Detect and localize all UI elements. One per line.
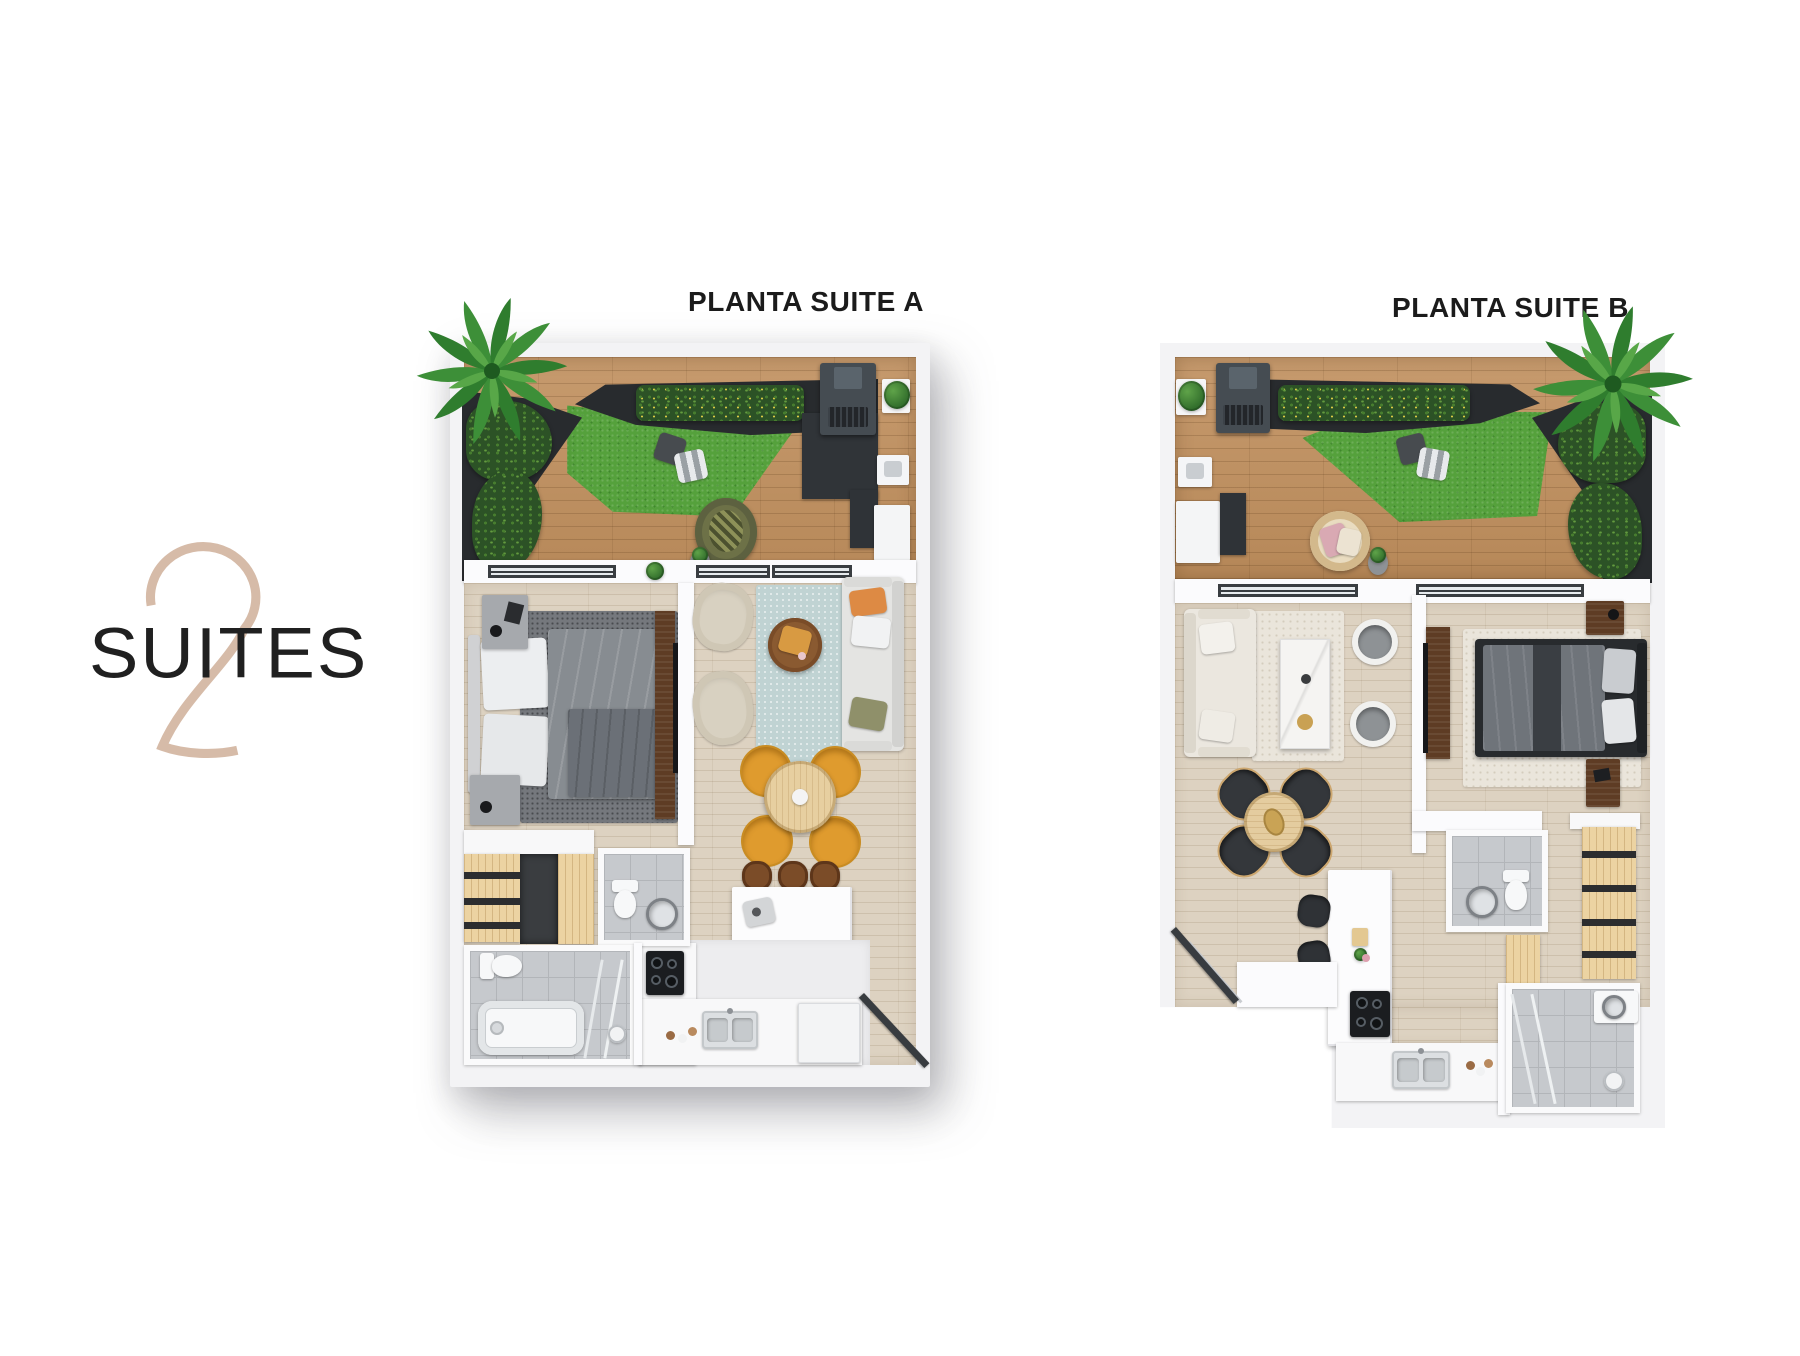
plan-a-fireplace [820, 363, 876, 435]
plan-a-bath-toilet [492, 955, 522, 977]
plan-b-bathroom [1506, 983, 1640, 1113]
plan-b-swivel-chair-2 [1350, 701, 1396, 747]
plan-a-coffee-table [768, 618, 822, 672]
plan-b-bed [1475, 639, 1647, 757]
plan-a-sofa-arm-top [844, 577, 892, 587]
plan-a-wardrobe-open-bay [520, 854, 558, 944]
plan-a-tub-drain [490, 1021, 504, 1035]
plan-a-nightstand-books [504, 601, 524, 624]
plan-b-tv-icon [1423, 643, 1428, 753]
plan-b-island-board [1352, 928, 1368, 946]
plan-b-marble-table [1280, 639, 1330, 749]
plan-a-fireplace-chimney [834, 367, 862, 389]
plan-a-dining-table [764, 761, 836, 833]
plan-b-sofa [1184, 609, 1256, 757]
plan-b-kitchen-faucet [1418, 1048, 1424, 1054]
plan-b-bed-headboard [1637, 643, 1647, 753]
plan-a-wc-toilet [614, 890, 636, 918]
plan-b-terrace-white-cabinet [1176, 501, 1220, 563]
plan-b-sofa-arm-top [1198, 609, 1250, 619]
plan-b-terrace-sink-bowl [1186, 463, 1204, 479]
plan-a-kitchen-faucet [727, 1008, 733, 1014]
plan-b-media-console [1426, 627, 1450, 759]
plan-a-wc [598, 848, 690, 946]
plan-a-sill-plant-icon [646, 562, 664, 580]
plan-b-nightstand-books [1593, 768, 1611, 783]
watermark-label: SUITES [89, 612, 368, 694]
plan-b-sofa-back [1184, 613, 1196, 753]
plan-b-counter-dishes [1466, 1061, 1475, 1070]
plan-a-sofa-pillow-olive [848, 696, 889, 732]
plan-a-shower-drain [608, 1025, 626, 1043]
plan-a-coffee-table-cloth [777, 625, 813, 658]
plan-a-shower-glass-2 [603, 959, 623, 1058]
plan-a-title: PLANTA SUITE A [688, 286, 924, 318]
plan-b-lawn-cushion-striped [1416, 447, 1451, 482]
plan-b-shower-glass-1 [1510, 994, 1536, 1104]
plan-a-wc-basin [646, 898, 678, 930]
plan-a-bathroom [464, 945, 636, 1065]
plan-b-dining-table [1244, 792, 1304, 852]
plan-b-swivel-chair-1 [1352, 619, 1398, 665]
plan-b-terrace-pot-plant-icon [1370, 547, 1386, 563]
plan-a-coffee-table-cup [798, 652, 806, 660]
plan-b-bed-runner [1533, 645, 1561, 751]
plan-b-sofa-pillow-1 [1198, 621, 1235, 655]
plan-a-nightstand-top [482, 595, 528, 649]
plan-b [1160, 343, 1665, 1128]
plan-a-sofa-arm-bottom [844, 741, 892, 751]
plan-b-fireplace-chimney [1229, 367, 1257, 389]
plan-a-cooktop [646, 951, 684, 995]
plan-a-wardrobe-counter [464, 830, 594, 854]
plan-a-wardrobe-left [464, 854, 520, 942]
plan-a-island-tray [742, 896, 777, 928]
plan-b-table-bowl [1301, 674, 1311, 684]
plan-b-wc-top-wall [1412, 811, 1542, 831]
plan-b-cooktop [1350, 991, 1390, 1037]
plan-a-lounge-cushion [709, 510, 743, 552]
plan-a-nightstand-bottom [470, 775, 520, 825]
plan-b-sofa-arm-bottom [1198, 747, 1250, 757]
plan-b-bath-basin [1602, 995, 1626, 1019]
plan-b-fireplace-grill [1223, 405, 1263, 425]
plan-a-hedge-top [636, 385, 804, 421]
plan-a-lamp-icon-2 [480, 801, 492, 813]
plan-a-sofa-pillow-white [851, 615, 892, 649]
plan-b-living-window [1218, 584, 1358, 597]
plan-b-bath-vanity [1594, 991, 1638, 1023]
plan-b-wardrobe [1582, 827, 1636, 979]
plan-a-living-window [696, 565, 770, 578]
plan-a-wardrobe-right [558, 854, 594, 944]
plan-a-dining-table-plate [792, 789, 808, 805]
plan-b-wc-toilet [1505, 880, 1527, 910]
palm-tree-icon [412, 291, 572, 451]
plan-b-shower-drain [1604, 1071, 1624, 1091]
plan-b-gold-tray [1297, 714, 1313, 730]
plan-b-lamp-icon [1608, 609, 1619, 620]
plan-b-nightstand-top [1586, 601, 1624, 635]
plan-a-terrace-sink-bowl [884, 461, 902, 477]
plan-b-counter-bottom [1336, 1043, 1504, 1101]
plan-a-terrace-door [772, 565, 852, 578]
plan-a-lamp-icon [490, 625, 502, 637]
plan-b-shower-glass-2 [1530, 994, 1556, 1104]
plan-a-bathtub [478, 1001, 584, 1055]
plan-a-bath-kitchen-wall [634, 943, 642, 1065]
plan-b-bed-pillow-1 [1602, 648, 1637, 694]
plan-a-bed-throw [568, 709, 658, 797]
plan-a-sofa [842, 577, 904, 751]
plan-a-kitchen-sink [702, 1011, 758, 1049]
plan-a-lawn-cushion-striped [673, 448, 709, 484]
plan-a-appliance [798, 1003, 860, 1063]
plan-b-kitchen-sink [1392, 1051, 1450, 1089]
plan-b-daybed [1310, 511, 1370, 571]
plan-a-island-bottle [751, 907, 762, 918]
plan-a-sofa-pillow-orange [848, 587, 887, 618]
plan-b-sofa-pillow-2 [1198, 709, 1236, 743]
plan-a-counter-dishes [666, 1031, 675, 1040]
plan-a-terrace-white-cabinet [874, 505, 910, 561]
plan-b-wc-basin [1466, 886, 1498, 918]
plan-b-bottom-left-wall [1237, 962, 1337, 1007]
plan-a-bed-headboard [468, 635, 480, 793]
plan-b-bed-pillow-2 [1601, 698, 1637, 745]
floorplan-sheet: 2 SUITES PLANTA SUITE A PLANTA SUITE B [0, 0, 1800, 1356]
plan-a-fireplace-grill [828, 407, 868, 427]
plan-a-media-console [655, 611, 675, 819]
plan-b-terrace-dark-cabinet [1220, 493, 1246, 555]
plan-a-shower-glass-1 [583, 959, 603, 1058]
plan-b-island-flower-pink [1362, 954, 1370, 962]
plan-b-dining-centerpiece [1260, 805, 1288, 838]
plan-b-daybed-cushion-cream [1336, 527, 1363, 557]
plan-b-nightstand-bottom [1586, 759, 1620, 807]
plan-b-fireplace [1216, 363, 1270, 433]
plan-b-hedge-top [1278, 385, 1470, 421]
plan-a-bed [468, 629, 658, 799]
plan-b-bath-mat [1506, 935, 1540, 983]
palm-tree-icon-b [1528, 299, 1698, 469]
plan-a-sofa-back [892, 581, 904, 747]
plan-a-terrace-sink [877, 455, 909, 485]
plan-a-bedroom-window [488, 565, 616, 578]
plan-b-wc [1446, 830, 1548, 932]
plan-a [450, 343, 930, 1087]
plan-a-small-plant-icon [884, 381, 910, 409]
plan-b-bedroom-window [1416, 584, 1584, 597]
plan-b-small-plant-icon [1178, 381, 1205, 411]
plan-b-terrace-sink [1178, 457, 1212, 487]
